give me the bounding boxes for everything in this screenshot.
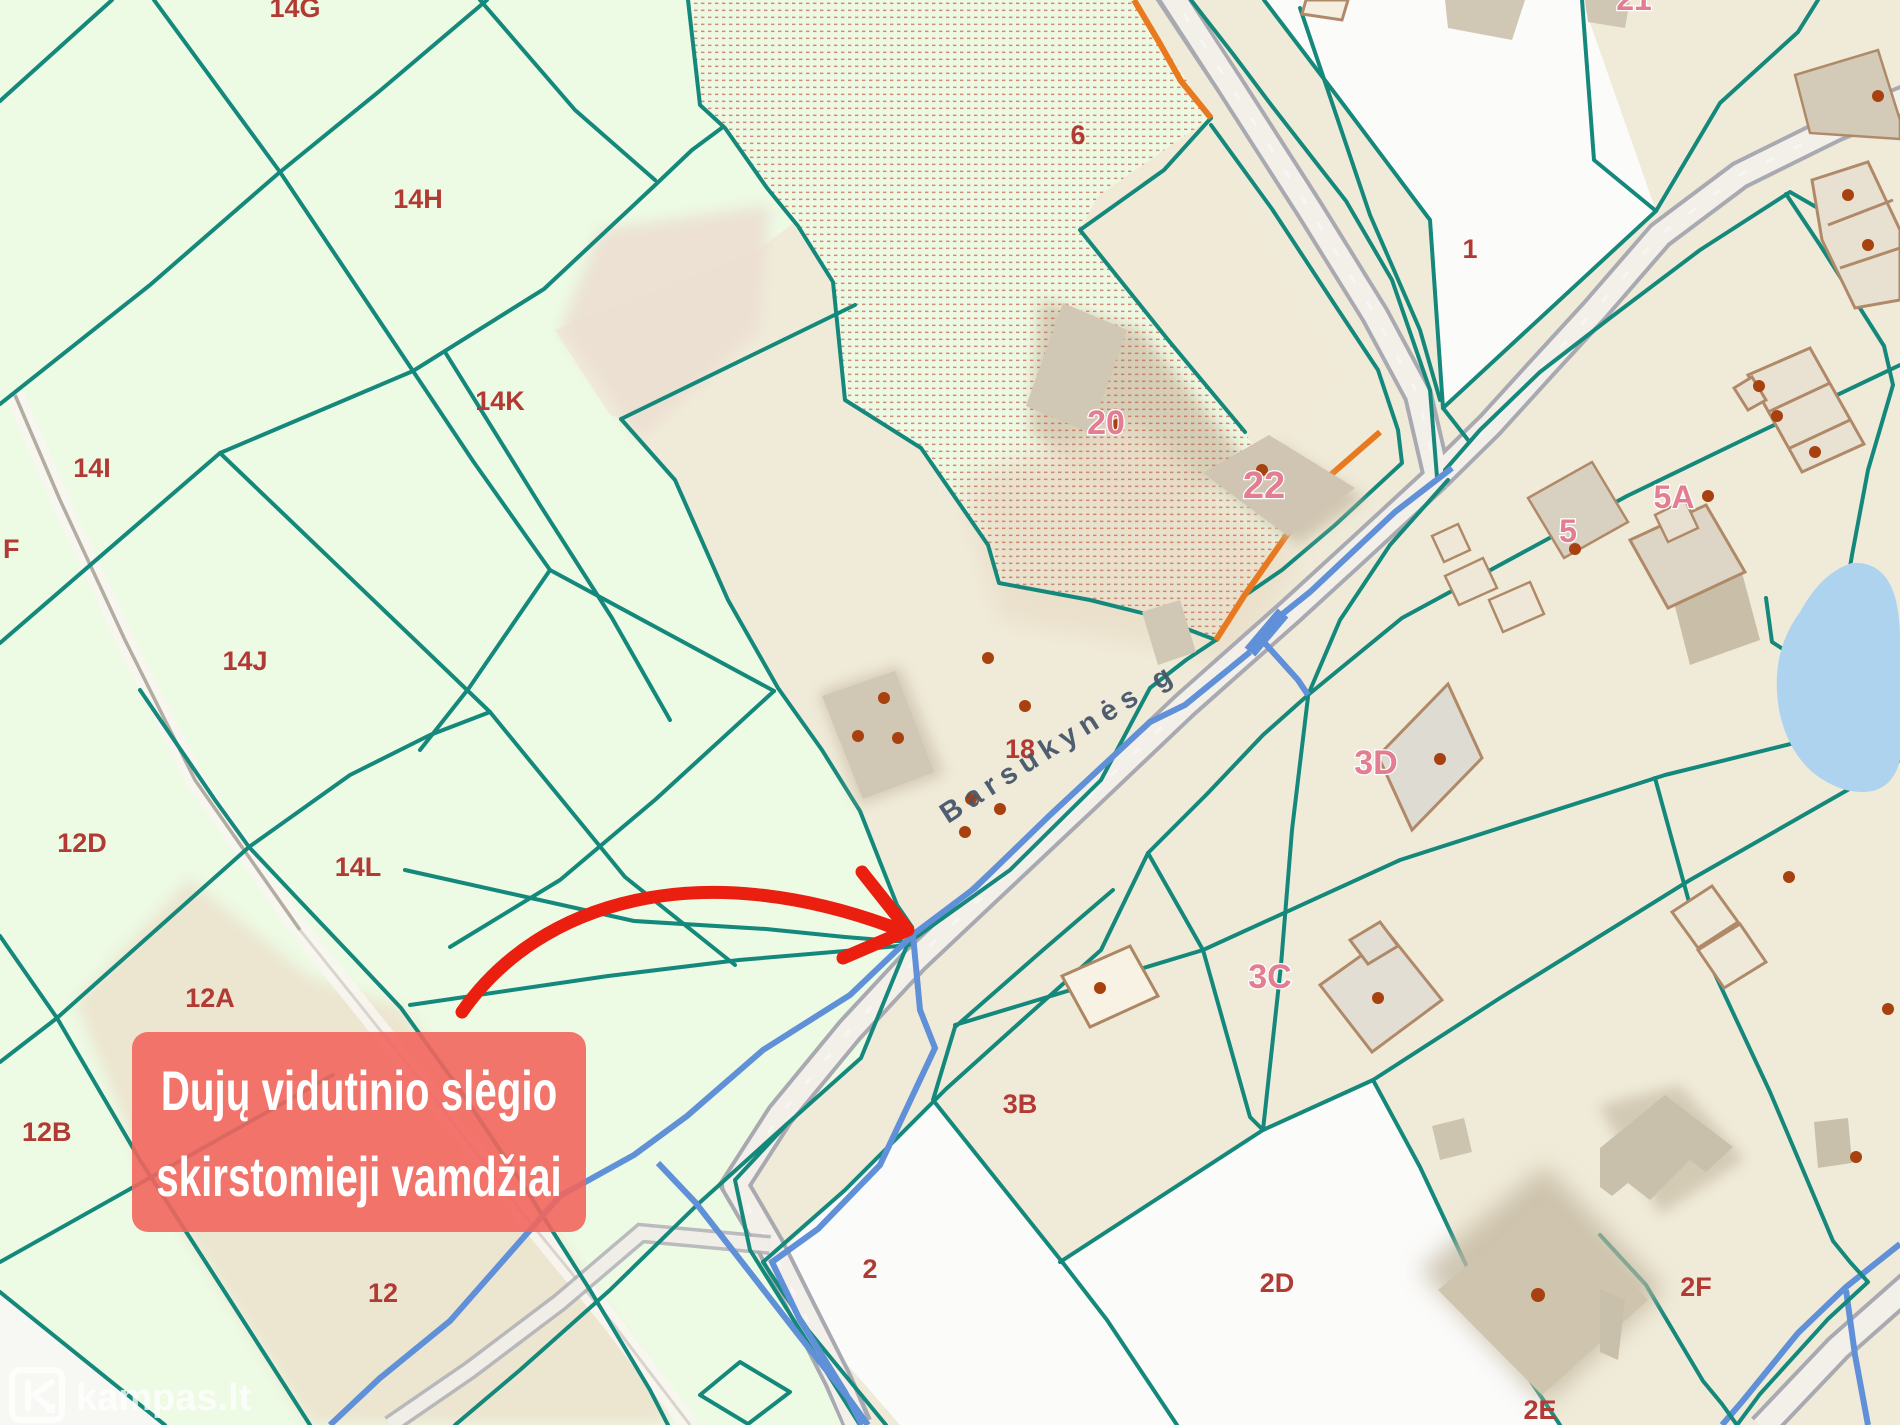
svg-text:Dujų vidutinio slėgio: Dujų vidutinio slėgio [161, 1061, 557, 1123]
svg-text:2: 2 [862, 1254, 877, 1284]
svg-text:kampas.lt: kampas.lt [76, 1377, 252, 1419]
svg-text:skirstomieji vamdžiai: skirstomieji vamdžiai [156, 1147, 562, 1209]
svg-text:2D: 2D [1260, 1268, 1295, 1298]
svg-text:12: 12 [368, 1278, 398, 1308]
svg-text:12B: 12B [22, 1117, 72, 1147]
svg-text:3B: 3B [1003, 1089, 1038, 1119]
svg-text:F: F [3, 534, 20, 564]
svg-text:1: 1 [1462, 234, 1477, 264]
svg-text:12D: 12D [57, 828, 107, 858]
svg-text:14K: 14K [475, 386, 525, 416]
svg-text:14L: 14L [335, 852, 382, 882]
svg-text:14I: 14I [73, 453, 111, 483]
svg-text:2E: 2E [1523, 1395, 1556, 1425]
svg-text:20: 20 [1087, 404, 1125, 442]
svg-text:5A: 5A [1654, 479, 1695, 515]
svg-text:22: 22 [1243, 465, 1285, 507]
svg-text:5: 5 [1559, 513, 1577, 549]
svg-text:12A: 12A [185, 983, 235, 1013]
svg-text:2F: 2F [1680, 1272, 1712, 1302]
svg-text:3D: 3D [1354, 744, 1397, 782]
svg-text:3C: 3C [1248, 958, 1291, 996]
svg-text:14J: 14J [222, 646, 267, 676]
svg-text:21: 21 [1616, 0, 1652, 17]
svg-text:6: 6 [1070, 120, 1085, 150]
svg-text:14H: 14H [393, 184, 443, 214]
svg-text:14G: 14G [269, 0, 320, 23]
